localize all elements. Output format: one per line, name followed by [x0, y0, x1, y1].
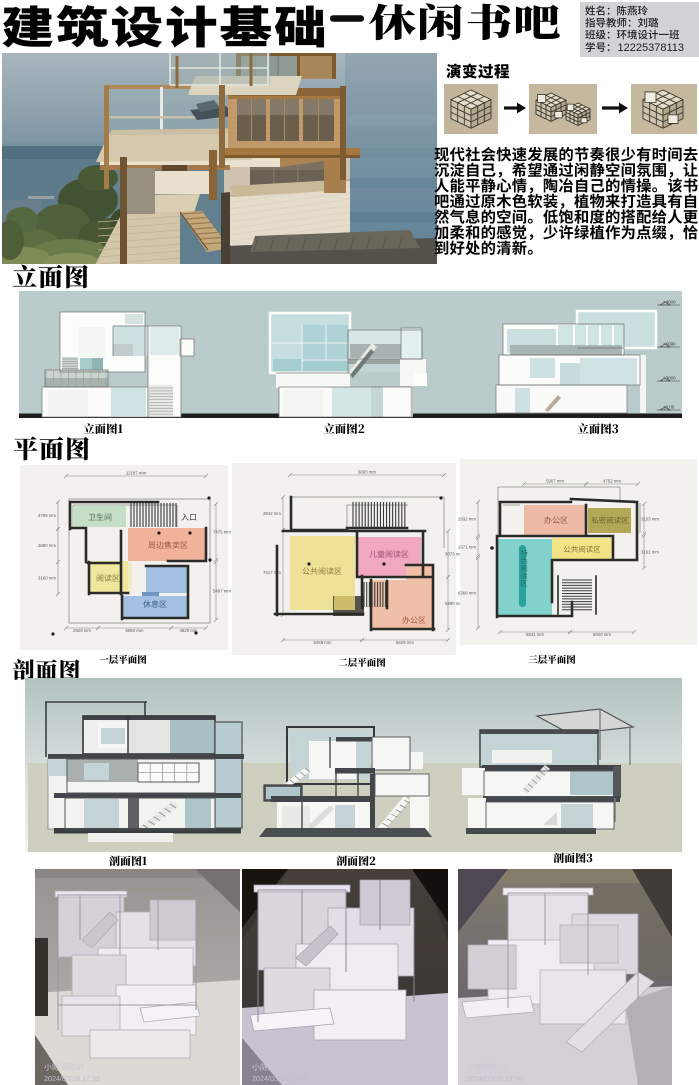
svg-text:6841 mm: 6841 mm — [526, 632, 544, 637]
svg-text:+6000: +6000 — [663, 342, 676, 347]
svg-text:±0.00: ±0.00 — [663, 405, 675, 410]
svg-text:6269 mm: 6269 mm — [314, 640, 332, 645]
svg-text:5600 mm: 5600 mm — [593, 632, 611, 637]
svg-text:4795 mm: 4795 mm — [38, 513, 56, 518]
svg-text:6003 mm: 6003 mm — [358, 470, 376, 475]
svg-text:+9000: +9000 — [663, 300, 676, 305]
svg-text:5497 mm: 5497 mm — [213, 589, 231, 594]
svg-text:2932 mm: 2932 mm — [458, 517, 476, 522]
svg-text:6080 mm: 6080 mm — [126, 628, 144, 633]
svg-text:2024/03/28 17:40: 2024/03/28 17:40 — [467, 1074, 523, 1083]
svg-text:2024/03/28 17:38: 2024/03/28 17:38 — [44, 1074, 100, 1083]
svg-text:4752 mm: 4752 mm — [603, 479, 621, 484]
svg-text:2024/03/28 17:40: 2024/03/28 17:40 — [252, 1074, 308, 1083]
svg-text:5629 mm: 5629 mm — [396, 640, 414, 645]
svg-text:12187 mm: 12187 mm — [126, 471, 147, 476]
svg-text:6366 mm: 6366 mm — [458, 591, 476, 596]
svg-text:2920 mm: 2920 mm — [73, 628, 91, 633]
svg-text:3160 mm: 3160 mm — [38, 576, 56, 581]
svg-text:2842 mm: 2842 mm — [263, 511, 281, 516]
svg-text:1371 mm: 1371 mm — [458, 545, 476, 550]
svg-text:+3000: +3000 — [663, 376, 676, 381]
svg-text:7417 mm: 7417 mm — [263, 570, 281, 575]
svg-text:3103 mm: 3103 mm — [641, 517, 659, 522]
svg-text:5967 mm: 5967 mm — [546, 479, 564, 484]
svg-text:12225378113: 12225378113 — [618, 42, 684, 54]
svg-text:3161 mm: 3161 mm — [641, 550, 659, 555]
svg-text:2680 mm: 2680 mm — [38, 543, 56, 548]
svg-text:7475 mm: 7475 mm — [213, 530, 231, 535]
